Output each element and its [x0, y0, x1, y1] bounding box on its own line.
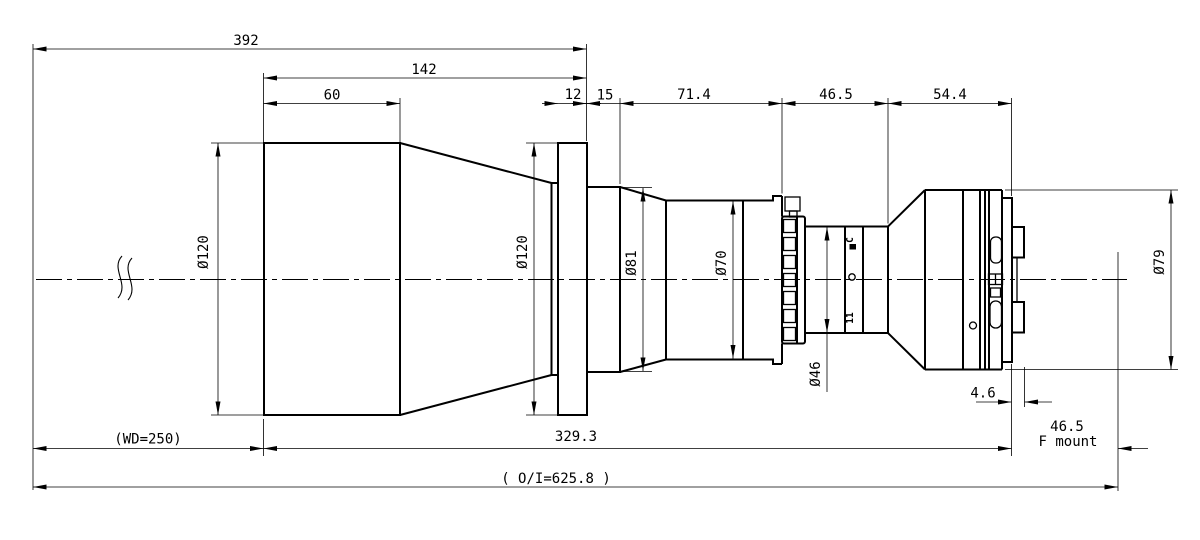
lock-knob: [785, 197, 800, 217]
front-barrel: [264, 143, 400, 415]
lens-technical-drawing: 392 142 60 12 15 71.4 46.5 54.4 (WD=250)…: [0, 0, 1200, 540]
dia-flange: Ø120: [515, 235, 531, 269]
aperture-closed-mark: C: [845, 237, 856, 243]
drawing-canvas: 392 142 60 12 15 71.4 46.5 54.4 (WD=250)…: [0, 0, 1200, 540]
dia-rear: Ø79: [1152, 249, 1168, 274]
dim-front-to-flange: 142: [411, 62, 436, 78]
knurled-ring: [782, 217, 805, 344]
dim-overall-length: 392: [233, 33, 258, 49]
dim-rear-section: 54.4: [933, 87, 967, 103]
dia-mid-ring: Ø81: [624, 250, 640, 275]
dim-mid-barrel: 71.4: [677, 87, 711, 103]
dim-iris-section: 46.5: [819, 87, 853, 103]
dim-flange-width: 12: [565, 87, 582, 103]
index-dot: [849, 274, 855, 280]
dia-front-barrel: Ø120: [196, 235, 212, 269]
mount-flange: [558, 143, 587, 415]
lens-body-outline: [264, 143, 1024, 415]
aperture-fstop-mark: 11: [845, 312, 856, 324]
label-f-mount: F mount: [1038, 434, 1097, 450]
main-barrel: [666, 196, 782, 364]
dim-object-image: ( O/I=625.8 ): [501, 471, 611, 487]
dim-hood-length: 60: [324, 88, 341, 104]
mount-plate: [1002, 198, 1012, 362]
dim-working-distance: (WD=250): [114, 432, 181, 448]
screw-dot: [970, 322, 977, 329]
dim-step-width: 15: [597, 88, 614, 104]
dim-bayonet-depth: 4.6: [970, 386, 995, 402]
dim-flange-focal: 46.5: [1050, 419, 1084, 435]
dia-main-barrel: Ø70: [714, 250, 730, 275]
dim-body-length: 329.3: [555, 429, 597, 445]
dimension-labels: 392 142 60 12 15 71.4 46.5 54.4 (WD=250)…: [114, 33, 1168, 487]
dia-iris-neck: Ø46: [808, 361, 824, 386]
break-squiggle: [118, 256, 132, 300]
aperture-index-square: [850, 244, 857, 250]
